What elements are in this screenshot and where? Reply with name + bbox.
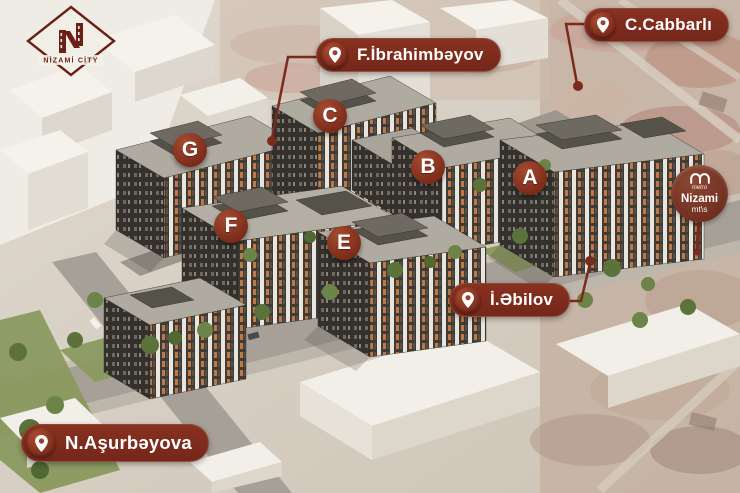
street-label-c-cabbarli[interactable]: C.Cabbarlı (584, 8, 729, 42)
leader-dot-c-cabbarli (573, 81, 583, 91)
metro-line-note: mt\s (691, 205, 707, 214)
location-pin-icon (26, 428, 56, 458)
street-label-n-asurbayova[interactable]: N.Aşurbəyova (21, 424, 209, 462)
masterplan-view: NİZAMİ CİTY F.İbrahimbəyov C.Cabbarlı İ.… (0, 0, 740, 493)
street-label-text: İ.Əbilov (490, 290, 553, 310)
street-label-text: C.Cabbarlı (625, 15, 712, 35)
leader-dot-i-abilov (585, 256, 595, 266)
building-marker-c[interactable]: C (313, 99, 347, 133)
building-marker-g[interactable]: G (173, 133, 207, 167)
metro-station-name: Nizami (681, 193, 718, 205)
metro-pole-dot (694, 249, 701, 256)
street-label-f-ibrahimbayov[interactable]: F.İbrahimbəyov (316, 38, 501, 72)
brand-name: NİZAMİ CİTY (43, 57, 98, 65)
street-label-i-abilov[interactable]: İ.Əbilov (449, 283, 570, 317)
street-label-text: F.İbrahimbəyov (357, 45, 484, 65)
building-marker-f[interactable]: F (214, 209, 248, 243)
brand-logo[interactable]: NİZAMİ CİTY (24, 4, 118, 83)
location-pin-icon (589, 12, 616, 39)
metro-station-marker[interactable]: metro Nizami mt\s (671, 165, 728, 222)
building-marker-b[interactable]: B (411, 150, 445, 184)
street-label-text: N.Aşurbəyova (65, 432, 192, 454)
brand-logo-icon: NİZAMİ CİTY (24, 4, 118, 78)
leader-dot-f-ibrahimbayov (267, 136, 277, 146)
location-pin-icon (454, 287, 481, 314)
metro-logo-icon (689, 173, 711, 184)
building-marker-a[interactable]: A (513, 161, 547, 195)
location-pin-icon (321, 42, 348, 69)
metro-pole (697, 221, 699, 251)
metro-brand-text: metro (692, 185, 707, 191)
building-marker-e[interactable]: E (327, 226, 361, 260)
